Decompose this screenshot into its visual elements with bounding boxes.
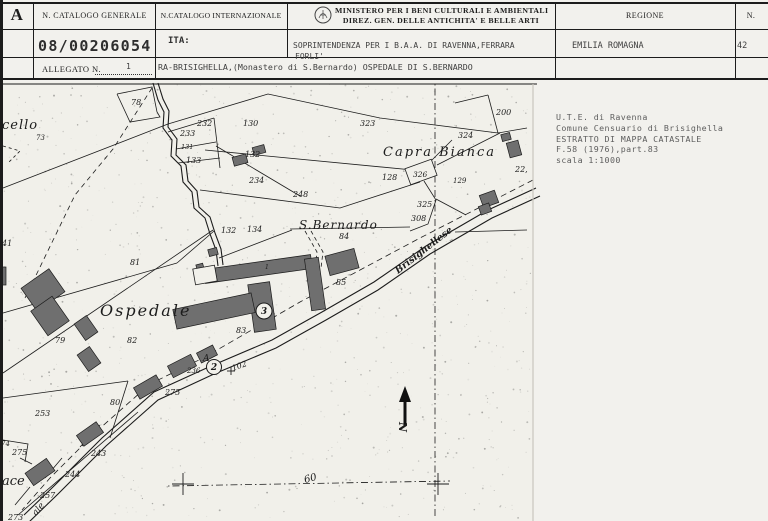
map-label: 85 <box>336 278 346 287</box>
map-label: 84 <box>339 232 349 241</box>
map-label: A <box>202 354 210 364</box>
map-label: 257 <box>39 491 56 500</box>
rule-col-1 <box>155 2 156 78</box>
map-label: 275 <box>164 388 180 397</box>
map-label: 129 <box>453 177 467 185</box>
map-label: 133 <box>186 156 201 165</box>
map-label: 73 <box>36 134 45 142</box>
map-label: 131 <box>181 143 193 151</box>
map-label: 81 <box>130 258 140 267</box>
soprintendenza-line1: SOPRINTENDENZA PER I B.A.A. DI RAVENNA,F… <box>293 41 515 50</box>
circled-number-text: 2 <box>210 363 217 373</box>
rule-col-3 <box>555 2 556 78</box>
outlined-structure <box>193 265 217 285</box>
circled-number-text: 3 <box>261 307 267 317</box>
ministry-line2: DIREZ. GEN. DELLE ANTICHITA' E BELLE ART… <box>335 16 547 25</box>
scanned-catalog-card: { "header": { "corner_letter": "A", "col… <box>0 0 768 521</box>
map-label: 132 <box>221 226 236 235</box>
rule-row2 <box>0 57 768 58</box>
rule-bottom <box>0 78 768 80</box>
rule-col-4 <box>735 2 736 78</box>
header-form: A N. CATALOGO GENERALE N.CATALOGO INTERN… <box>0 0 768 82</box>
map-label: 22, <box>514 165 528 174</box>
map-label: 82 <box>127 336 137 345</box>
map-label: 248 <box>292 190 308 199</box>
scan-left-edge <box>0 0 3 521</box>
n-value: 42 <box>737 41 747 51</box>
object-title: RA-BRISIGHELLA,(Monastero di S.Bernardo)… <box>158 62 473 72</box>
allegato-underline <box>95 73 152 75</box>
map-label: 79 <box>55 336 65 345</box>
map-label: 128 <box>382 173 397 182</box>
map-label: 132 <box>245 150 260 159</box>
map-label: 236 <box>186 367 201 375</box>
allegato-label: ALLEGATO N. <box>42 64 101 74</box>
allegato-value: 1 <box>126 62 131 71</box>
map-label: 83 <box>236 326 246 335</box>
map-label: 253 <box>34 409 50 418</box>
regione-label: REGIONE <box>557 11 733 20</box>
map-label: 308 <box>411 214 426 223</box>
map-label: 134 <box>247 225 262 234</box>
side-note-line: Comune Censuario di Brisighella <box>556 123 723 134</box>
map-label: 80 <box>110 398 120 407</box>
catalogo-internazionale-label: N.CATALOGO INTERNAZIONALE <box>157 11 285 20</box>
ministry-line1: MINISTERO PER I BENI CULTURALI E AMBIENT… <box>335 6 547 15</box>
ministry-emblem-icon <box>313 5 333 30</box>
map-label: N <box>396 421 409 433</box>
map-label: 323 <box>360 119 375 128</box>
rule-row1 <box>0 29 768 30</box>
map-label: 200 <box>495 108 511 117</box>
map-label: 273 <box>7 513 23 521</box>
map-label: S.Bernardo <box>299 218 378 232</box>
map-label: 275 <box>11 448 27 457</box>
ita-label: ITA: <box>168 36 190 46</box>
map-label: 234 <box>248 176 264 185</box>
catalogo-generale-label: N. CATALOGO GENERALE <box>36 11 153 20</box>
map-label: 130 <box>243 119 258 128</box>
regione-value: EMILIA ROMAGNA <box>572 41 644 51</box>
soprintendenza-line2: FORLI' <box>295 52 324 61</box>
map-label: ace <box>2 474 25 489</box>
side-note: U.T.E. di Ravenna Comune Censuario di Br… <box>556 112 723 166</box>
side-note-line: F.58 (1976),part.83 <box>556 144 723 155</box>
map-label: 232 <box>196 119 212 128</box>
map-label: 233 <box>179 129 195 138</box>
n-label: N. <box>737 11 765 20</box>
side-note-line: ESTRATTO DI MAPPA CATASTALE <box>556 134 723 145</box>
side-note-line: scala 1:1000 <box>556 155 723 166</box>
map-label: 324 <box>458 131 473 140</box>
side-note-line: U.T.E. di Ravenna <box>556 112 723 123</box>
map-label: 78 <box>131 98 141 107</box>
map-label: Capra Bianca <box>383 145 496 160</box>
map-label: cello <box>2 118 38 133</box>
rule-col-a <box>33 2 34 78</box>
rule-top <box>0 2 768 4</box>
map-label: 326 <box>413 170 428 179</box>
rule-col-2 <box>287 2 288 57</box>
map-label: 1 <box>265 264 269 271</box>
catalog-number: 08/00206054 <box>38 37 152 55</box>
map-label: 244 <box>64 470 80 479</box>
map-label: Ospedale <box>100 301 191 320</box>
map-label: 243 <box>90 449 106 458</box>
map-label: 325 <box>417 200 432 209</box>
corner-letter: A <box>4 5 30 25</box>
